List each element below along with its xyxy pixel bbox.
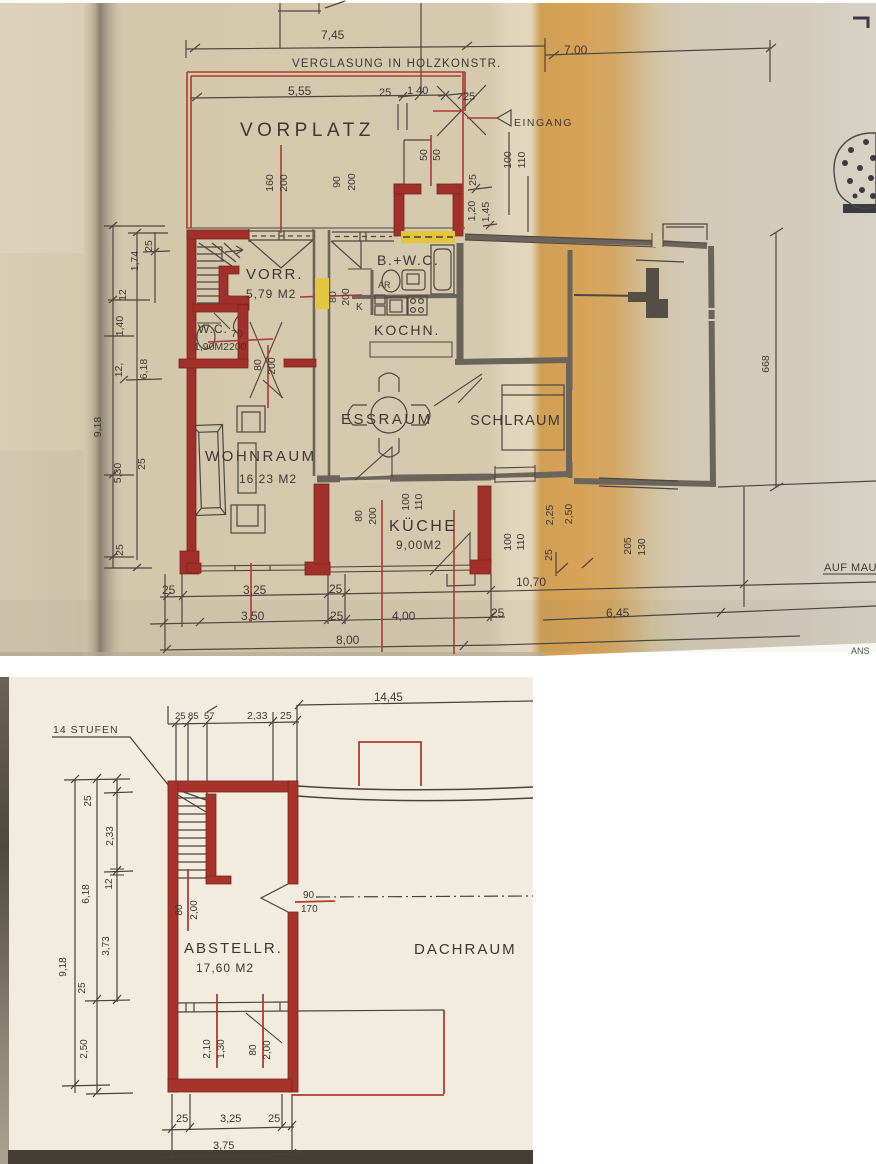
svg-text:W.C.: W.C.: [198, 322, 228, 336]
svg-text:25: 25: [83, 795, 94, 807]
svg-text:25: 25: [268, 1113, 280, 1125]
svg-text:170: 170: [301, 904, 318, 915]
svg-text:70: 70: [231, 328, 243, 340]
svg-text:50: 50: [418, 149, 430, 161]
svg-text:200: 200: [367, 507, 379, 525]
svg-text:80: 80: [252, 359, 264, 371]
svg-text:VORPLATZ: VORPLATZ: [240, 120, 375, 141]
svg-text:9,18: 9,18: [58, 957, 69, 977]
svg-text:1,45: 1,45: [480, 202, 492, 223]
svg-text:4,00: 4,00: [392, 609, 416, 623]
svg-text:25: 25: [330, 609, 344, 623]
svg-text:5,79 M2: 5,79 M2: [246, 287, 296, 301]
svg-text:80: 80: [248, 1044, 259, 1056]
svg-text:3,25: 3,25: [243, 583, 267, 597]
svg-text:200: 200: [278, 174, 290, 192]
svg-text:85: 85: [188, 711, 199, 722]
svg-text:25: 25: [543, 549, 555, 561]
svg-text:200: 200: [346, 173, 358, 191]
svg-text:25: 25: [162, 583, 176, 597]
svg-text:6,45: 6,45: [606, 606, 630, 620]
svg-text:100: 100: [502, 151, 514, 169]
svg-text:9,18: 9,18: [92, 417, 104, 438]
svg-text:100: 100: [502, 533, 514, 551]
svg-text:10,70: 10,70: [516, 575, 546, 589]
svg-text:DACHRAUM: DACHRAUM: [414, 941, 517, 958]
svg-text:8,00: 8,00: [336, 633, 360, 647]
svg-text:80: 80: [327, 291, 339, 303]
svg-text:2,10: 2,10: [202, 1039, 213, 1059]
svg-text:AR: AR: [378, 280, 391, 290]
svg-text:110: 110: [516, 151, 528, 168]
svg-text:3,50: 3,50: [241, 609, 265, 623]
svg-text:90: 90: [303, 890, 315, 901]
svg-text:160: 160: [264, 174, 276, 192]
svg-text:5,55: 5,55: [288, 84, 312, 98]
svg-text:25: 25: [77, 982, 88, 994]
svg-text:2,50: 2,50: [563, 504, 575, 525]
svg-text:25: 25: [280, 710, 292, 722]
svg-text:17,60 M2: 17,60 M2: [196, 961, 254, 975]
svg-text:25: 25: [491, 606, 505, 620]
svg-text:25: 25: [136, 458, 148, 470]
svg-text:12,: 12,: [113, 363, 125, 378]
svg-text:200: 200: [266, 357, 278, 375]
svg-text:1,74: 1,74: [129, 251, 141, 272]
svg-text:K: K: [356, 302, 363, 313]
svg-text:1,40: 1,40: [114, 316, 126, 337]
svg-text:SCHLRAUM: SCHLRAUM: [470, 413, 561, 429]
svg-text:6,18: 6,18: [81, 884, 92, 904]
svg-text:16,23 M2: 16,23 M2: [239, 472, 297, 486]
svg-text:ESSRAUM: ESSRAUM: [341, 411, 433, 428]
svg-text:12: 12: [117, 289, 129, 301]
svg-text:2,50: 2,50: [79, 1039, 90, 1059]
svg-text:57: 57: [204, 711, 215, 722]
svg-text:100: 100: [400, 493, 412, 511]
svg-text:25: 25: [463, 91, 475, 103]
svg-text:14 STUFEN: 14 STUFEN: [53, 724, 119, 736]
svg-text:KÜCHE: KÜCHE: [389, 517, 458, 535]
svg-text:ANS: ANS: [851, 646, 870, 656]
svg-text:110: 110: [515, 533, 527, 550]
svg-text:130: 130: [636, 538, 648, 556]
svg-text:AUF MAU: AUF MAU: [824, 562, 876, 574]
svg-text:3,73: 3,73: [101, 936, 112, 956]
svg-text:1,90M2: 1,90M2: [194, 341, 229, 353]
svg-text:2,25: 2,25: [544, 505, 556, 526]
svg-text:5,30: 5,30: [112, 463, 124, 484]
svg-text:25: 25: [175, 711, 186, 722]
svg-text:200: 200: [229, 341, 247, 353]
svg-text:ABSTELLR.: ABSTELLR.: [184, 940, 283, 957]
svg-text:6,18: 6,18: [138, 359, 150, 380]
svg-text:25: 25: [467, 174, 479, 186]
svg-text:KOCHN.: KOCHN.: [374, 322, 440, 338]
svg-text:2,33: 2,33: [247, 710, 268, 722]
svg-text:25: 25: [379, 87, 391, 99]
svg-text:25: 25: [176, 1113, 188, 1125]
svg-text:1,30: 1,30: [216, 1039, 227, 1059]
svg-text:80: 80: [353, 510, 365, 522]
svg-text:1,20: 1,20: [466, 201, 478, 222]
svg-text:7.00: 7.00: [564, 43, 588, 57]
svg-text:VERGLASUNG IN HOLZKONSTR.: VERGLASUNG IN HOLZKONSTR.: [292, 58, 502, 70]
svg-text:VORR.: VORR.: [246, 266, 304, 283]
svg-text:14,45: 14,45: [374, 692, 403, 704]
svg-text:110: 110: [413, 493, 425, 510]
svg-text:EINGANG: EINGANG: [514, 117, 573, 129]
svg-text:1 40: 1 40: [407, 85, 428, 97]
svg-text:3,25: 3,25: [220, 1113, 241, 1125]
svg-text:50: 50: [431, 149, 443, 161]
svg-text:90: 90: [331, 176, 343, 188]
svg-text:7,45: 7,45: [321, 28, 345, 42]
svg-text:25: 25: [329, 582, 343, 596]
svg-text:3,75: 3,75: [213, 1140, 234, 1152]
svg-text:2,33: 2,33: [105, 826, 116, 846]
svg-text:12: 12: [104, 878, 115, 890]
svg-text:25: 25: [114, 544, 126, 556]
svg-text:2,00: 2,00: [189, 900, 200, 920]
svg-text:2,00: 2,00: [262, 1040, 273, 1060]
svg-text:200: 200: [340, 288, 352, 306]
svg-text:9,00M2: 9,00M2: [396, 538, 442, 552]
svg-text:WOHNRAUM: WOHNRAUM: [205, 448, 317, 465]
svg-text:80: 80: [174, 904, 185, 916]
svg-text:205: 205: [622, 537, 634, 555]
svg-text:B.+W.C.: B.+W.C.: [377, 252, 439, 268]
svg-text:668: 668: [760, 355, 772, 373]
svg-text:25: 25: [143, 240, 155, 252]
